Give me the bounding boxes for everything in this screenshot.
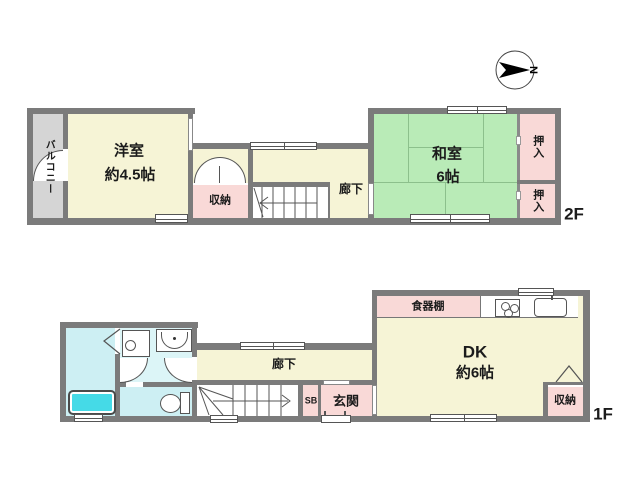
entrance-door-tick — [324, 411, 326, 416]
toilet-tank — [180, 392, 190, 414]
wall — [517, 114, 520, 218]
hallway-2f-label: 廊下 — [339, 183, 363, 195]
window-kitchen — [518, 288, 554, 296]
balcony-label: バルコニー — [43, 140, 54, 195]
washing-machine-dial — [125, 340, 136, 351]
wall — [372, 290, 590, 296]
oshiire-door-notch — [516, 191, 521, 200]
stairs-2f — [253, 187, 328, 218]
stairs-1f — [197, 385, 298, 416]
wall — [517, 180, 561, 184]
window-dk-south — [430, 414, 497, 422]
toilet-door-opening — [126, 382, 143, 387]
wall — [543, 382, 548, 416]
wall — [27, 108, 195, 114]
entrance-label: 玄関 — [333, 395, 359, 408]
stove — [495, 299, 520, 317]
tatami-line — [483, 114, 484, 182]
window-western-south — [155, 214, 188, 223]
washbasin-drain — [173, 337, 176, 340]
entrance-door — [321, 415, 351, 423]
closet-door-meet-line — [219, 166, 220, 183]
cupboard-label: 食器棚 — [412, 302, 445, 313]
stairs-2f-right-line — [328, 187, 330, 218]
japanese-room-label: 和室 — [432, 147, 462, 162]
storage-2f-opening — [193, 183, 248, 185]
window-under-stairs — [210, 415, 238, 423]
closet-lower-label: 押入 — [531, 189, 543, 213]
tatami-line — [445, 182, 446, 218]
entrance-door-tick — [344, 411, 346, 416]
wall — [318, 385, 321, 416]
floor-label-2f: 2F — [564, 206, 584, 223]
window-hallway-1f — [240, 342, 305, 350]
door-entrance-dk — [372, 385, 377, 415]
toilet-bowl — [160, 394, 181, 413]
western-room-size: 約4.5帖 — [105, 168, 156, 183]
washing-machine — [122, 330, 150, 357]
balcony-door-opening — [63, 149, 68, 181]
wall — [583, 290, 590, 422]
storage-2f-label: 収納 — [209, 196, 231, 207]
closet-upper-label: 押入 — [531, 135, 543, 159]
oshiire-door-notch — [516, 136, 521, 145]
compass-north-label: N — [527, 66, 539, 74]
washbasin-bowl — [161, 332, 188, 349]
kitchen-sink — [534, 298, 567, 317]
dk-label: DK — [463, 344, 488, 361]
wall — [298, 385, 303, 416]
wall — [27, 108, 33, 225]
stairs-1f-treads — [197, 385, 298, 416]
storage-1f-label: 収納 — [554, 396, 576, 407]
japanese-room-size: 6帖 — [436, 170, 459, 185]
door-japanese-room — [368, 183, 374, 215]
window-hallway-2f — [250, 142, 317, 150]
floor-label-1f: 1F — [593, 406, 613, 423]
dk-size: 約6帖 — [456, 366, 494, 381]
stove-burner — [504, 309, 513, 318]
door-western-room — [188, 118, 193, 151]
bath-folding-door — [101, 328, 121, 355]
washbasin — [156, 329, 192, 352]
bathtub — [68, 390, 116, 415]
washroom-door-opening — [192, 357, 197, 380]
wall — [555, 108, 561, 225]
window-bathroom — [74, 414, 103, 422]
hallway-1f-label: 廊下 — [272, 358, 296, 370]
window-japanese-south — [410, 214, 490, 223]
door-entrance-hall — [323, 380, 350, 385]
wall — [60, 322, 198, 328]
compass-icon: N — [495, 50, 547, 94]
floor-plan: バルコニー 洋室 約4.5帖 収納 廊下 和室 6帖 押入 押入 2F N — [0, 0, 640, 480]
shoe-box-label: SB — [305, 397, 318, 406]
storage-1f-folding-door — [554, 364, 584, 383]
western-room-label: 洋室 — [114, 144, 144, 159]
wall — [60, 322, 66, 422]
window-japanese-north — [447, 106, 507, 114]
stairs-2f-treads — [253, 187, 328, 218]
tatami-line — [408, 114, 409, 182]
storage-1f-opening — [548, 385, 583, 387]
